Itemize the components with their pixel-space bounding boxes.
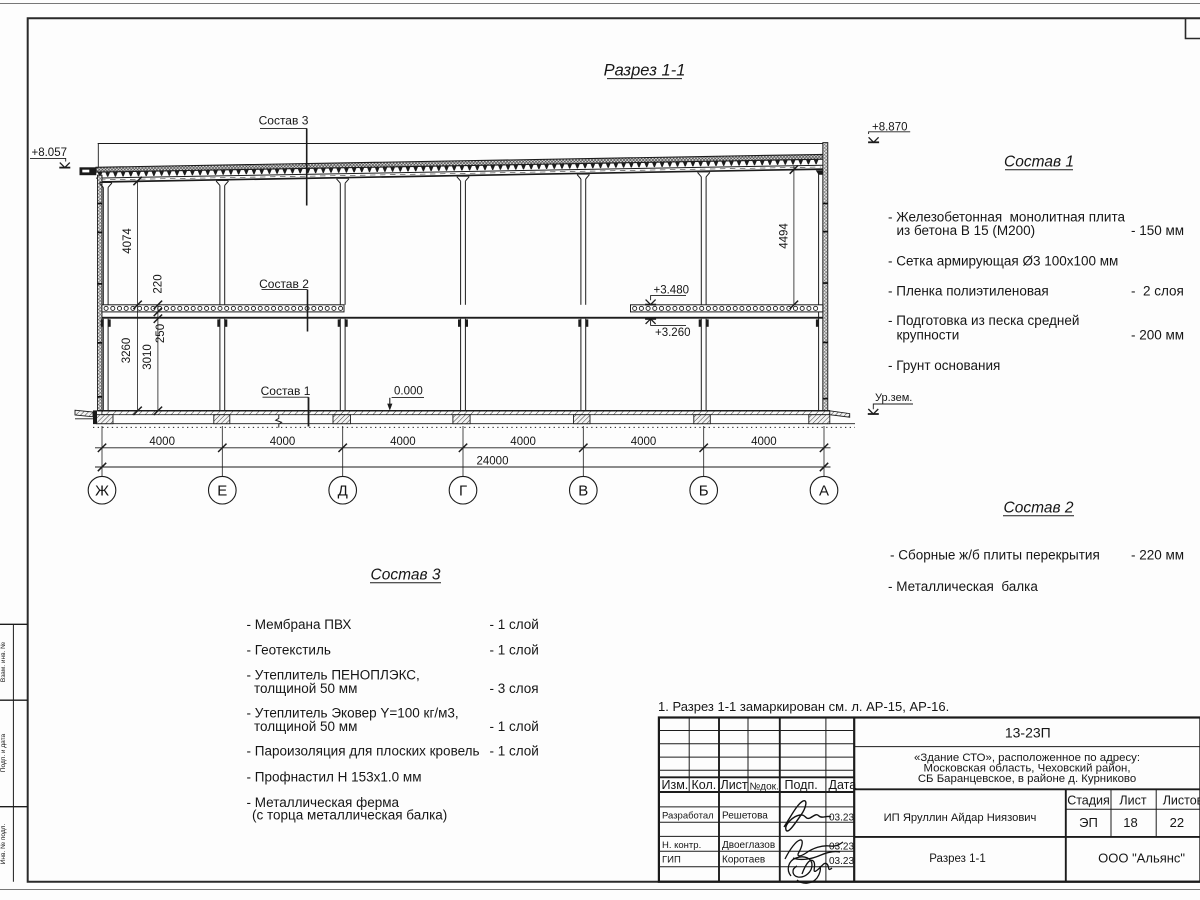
svg-text:13-23П: 13-23П xyxy=(1005,725,1051,741)
svg-text:Двоеглазов: Двоеглазов xyxy=(722,840,775,851)
svg-text:- Сетка армирующая Ø3 100х100: - Сетка армирующая Ø3 100х100 мм xyxy=(888,254,1118,269)
svg-text:Дата: Дата xyxy=(829,778,857,792)
svg-text:Коротаев: Коротаев xyxy=(722,855,765,866)
svg-text:Состав 2: Состав 2 xyxy=(259,277,309,291)
svg-text:3260: 3260 xyxy=(121,338,133,364)
svg-text:Ж: Ж xyxy=(95,482,109,499)
svg-text:- Профнастил Н 153х1.0 мм: - Профнастил Н 153х1.0 мм xyxy=(247,770,422,785)
svg-text:Изм.: Изм. xyxy=(662,778,689,792)
svg-text:Состав 1: Состав 1 xyxy=(1004,154,1074,171)
svg-text:- Пароизоляция для плоских кро: - Пароизоляция для плоских кровель xyxy=(247,744,480,759)
svg-text:Разрез 1-1: Разрез 1-1 xyxy=(929,853,985,865)
svg-text:Г: Г xyxy=(459,482,467,499)
svg-text:Состав 3: Состав 3 xyxy=(371,567,441,584)
svg-text:220: 220 xyxy=(153,274,165,293)
svg-text:ООО "Альянс": ООО "Альянс" xyxy=(1098,851,1185,866)
svg-text:- 1 слой: - 1 слой xyxy=(490,617,539,632)
svg-text:Лист: Лист xyxy=(1119,794,1146,808)
svg-text:Подп.: Подп. xyxy=(785,778,818,792)
svg-text:Состав 1: Состав 1 xyxy=(261,384,311,398)
svg-text:Подп. и дата: Подп. и дата xyxy=(0,733,7,772)
svg-text:Взам. инв. №: Взам. инв. № xyxy=(0,642,7,682)
svg-text:- Мембрана ПВХ: - Мембрана ПВХ xyxy=(247,617,352,632)
svg-text:4000: 4000 xyxy=(751,436,777,448)
svg-text:4000: 4000 xyxy=(270,436,296,448)
svg-text:из бетона В 15 (М200): из бетона В 15 (М200) xyxy=(897,223,1036,238)
svg-text:толщиной 50 мм: толщиной 50 мм xyxy=(254,681,357,696)
svg-text:- Сборные ж/б плиты перекрытия: - Сборные ж/б плиты перекрытия xyxy=(890,548,1100,563)
svg-text:18: 18 xyxy=(1123,815,1137,830)
svg-text:4000: 4000 xyxy=(631,436,657,448)
svg-text:Состав 2: Состав 2 xyxy=(1004,500,1074,517)
svg-text:250: 250 xyxy=(155,324,167,343)
svg-text:Е: Е xyxy=(217,482,227,499)
svg-text:(с торца металлическая балка): (с торца металлическая балка) xyxy=(252,808,447,823)
svg-text:Б: Б xyxy=(699,482,709,499)
svg-text:24000: 24000 xyxy=(477,455,509,467)
svg-text:Разрез 1-1: Разрез 1-1 xyxy=(604,62,686,80)
svg-text:03.23: 03.23 xyxy=(829,813,854,824)
svg-text:- 3 слоя: - 3 слоя xyxy=(490,681,539,696)
svg-text:- Металлическая балка: - Металлическая балка xyxy=(888,579,1038,594)
svg-text:Н. контр.: Н. контр. xyxy=(662,840,701,851)
svg-text:ЭП: ЭП xyxy=(1079,815,1098,830)
svg-text:ИП Яруллин Айдар Ниязович: ИП Яруллин Айдар Ниязович xyxy=(884,812,1037,824)
svg-text:- Пленка полиэтиленовая: - Пленка полиэтиленовая xyxy=(888,284,1049,299)
svg-text:Листов: Листов xyxy=(1163,794,1200,808)
svg-text:№док.: №док. xyxy=(750,782,779,793)
svg-text:3010: 3010 xyxy=(142,344,154,370)
svg-text:4074: 4074 xyxy=(122,228,134,254)
svg-text:- 2 слоя: - 2 слоя xyxy=(1131,284,1184,299)
svg-text:+3.260: +3.260 xyxy=(655,327,691,339)
svg-text:А: А xyxy=(819,482,829,499)
svg-text:Стадия: Стадия xyxy=(1067,794,1110,808)
svg-text:- 150 мм: - 150 мм xyxy=(1131,223,1184,238)
svg-text:4494: 4494 xyxy=(778,223,790,249)
svg-text:0.000: 0.000 xyxy=(394,386,423,398)
svg-text:Д: Д xyxy=(338,482,348,499)
svg-text:СБ Баранцевское, в районе д. К: СБ Баранцевское, в районе д. Курниково xyxy=(918,773,1136,785)
svg-text:Решетова: Решетова xyxy=(722,811,768,822)
svg-text:Лист: Лист xyxy=(721,778,748,792)
svg-text:4000: 4000 xyxy=(149,436,175,448)
svg-text:Ур.зем.: Ур.зем. xyxy=(875,392,912,404)
svg-text:22: 22 xyxy=(1170,815,1184,830)
svg-text:- Подготовка из песка средней: - Подготовка из песка средней xyxy=(888,313,1079,328)
svg-text:- 1 слой: - 1 слой xyxy=(490,744,539,759)
svg-text:- 1 слой: - 1 слой xyxy=(490,719,539,734)
svg-text:Инв. № подл.: Инв. № подл. xyxy=(0,824,7,865)
svg-text:- Грунт основания: - Грунт основания xyxy=(888,358,1000,373)
svg-text:- 200 мм: - 200 мм xyxy=(1131,328,1184,343)
svg-text:Кол.: Кол. xyxy=(692,778,717,792)
svg-text:4000: 4000 xyxy=(510,436,536,448)
svg-text:ГИП: ГИП xyxy=(662,855,681,866)
svg-text:Состав 3: Состав 3 xyxy=(259,114,309,128)
svg-text:В: В xyxy=(578,482,588,499)
svg-text:крупности: крупности xyxy=(897,328,960,343)
svg-text:- 1 слой: - 1 слой xyxy=(490,643,539,658)
svg-text:толщиной 50 мм: толщиной 50 мм xyxy=(254,719,357,734)
svg-text:Разработал: Разработал xyxy=(662,811,714,822)
svg-text:+3.480: +3.480 xyxy=(654,285,690,297)
svg-text:4000: 4000 xyxy=(390,436,416,448)
svg-text:+8.057: +8.057 xyxy=(32,147,68,159)
svg-text:- Геотекстиль: - Геотекстиль xyxy=(247,643,331,658)
svg-text:03.23: 03.23 xyxy=(829,856,854,867)
svg-text:1. Разрез 1-1 замаркирован см.: 1. Разрез 1-1 замаркирован см. л. АР-15,… xyxy=(658,699,949,714)
svg-text:- 220 мм: - 220 мм xyxy=(1131,548,1184,563)
